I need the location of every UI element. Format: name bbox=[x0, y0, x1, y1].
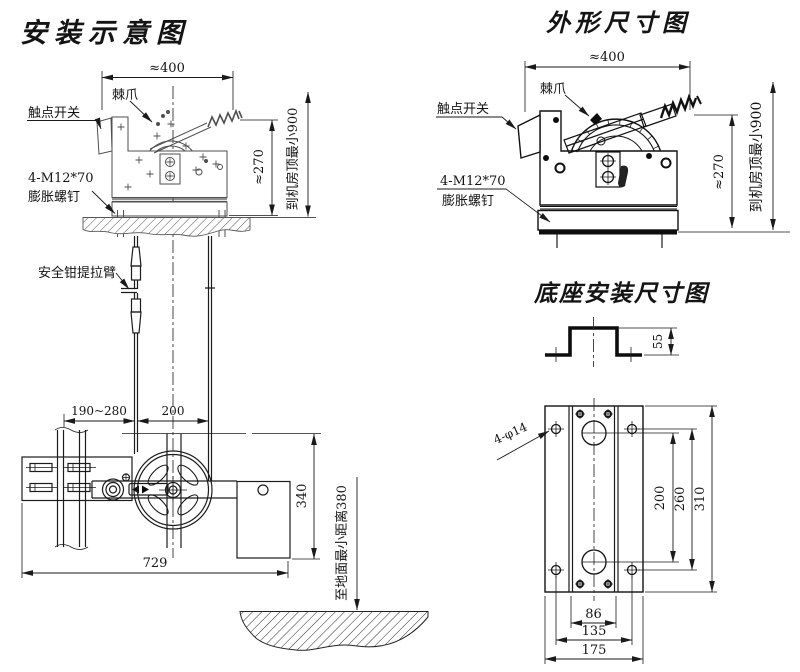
tension-assembly bbox=[22, 428, 321, 559]
svg-text:729: 729 bbox=[143, 556, 168, 571]
svg-text:86: 86 bbox=[585, 607, 602, 622]
bolt-name-label: 膨胀螺钉 bbox=[28, 190, 80, 205]
mounting-holes-label: 4-φ14 bbox=[491, 420, 529, 447]
svg-text:到机房顶最小900: 到机房顶最小900 bbox=[285, 108, 301, 211]
dim-overall-width: 729 bbox=[22, 503, 288, 578]
outline-diagram: 外形尺寸图 ≈400 bbox=[436, 8, 790, 248]
contact-switch-label: 触点开关 bbox=[28, 106, 80, 121]
svg-text:≈270: ≈270 bbox=[712, 154, 727, 190]
governor-rope bbox=[121, 236, 215, 482]
pawl-tip bbox=[590, 113, 602, 125]
installation-title: 安装示意图 bbox=[20, 18, 190, 49]
svg-text:190~280: 190~280 bbox=[71, 404, 127, 418]
base-plate-plan: 4-φ14 bbox=[491, 398, 643, 601]
contact-switch-bracket bbox=[518, 115, 540, 158]
base-title: 底座安装尺寸图 bbox=[533, 280, 711, 307]
dim-to-ceiling: 到机房顶最小900 bbox=[285, 92, 308, 217]
svg-text:135: 135 bbox=[582, 624, 607, 639]
dim-top-width: ≈400 bbox=[525, 50, 690, 112]
svg-text:260: 260 bbox=[673, 487, 688, 512]
base-plate bbox=[539, 230, 677, 235]
installation-diagram: 安装示意图 bbox=[20, 18, 428, 650]
svg-text:≈400: ≈400 bbox=[149, 61, 185, 76]
contact-switch-label: 触点开关 bbox=[437, 102, 489, 117]
dim-rail-to-rope: 190~280 bbox=[64, 404, 135, 427]
svg-text:200: 200 bbox=[162, 404, 185, 418]
counterweight-box bbox=[237, 482, 290, 559]
tension-spring bbox=[661, 97, 696, 118]
dim-to-ceiling: 到机房顶最小900 bbox=[749, 82, 773, 230]
svg-text:340: 340 bbox=[295, 484, 310, 509]
safety-gear-arm-label: 安全钳提拉臂 bbox=[38, 265, 116, 281]
dim-channel-height: 55 bbox=[619, 328, 679, 355]
dim-tension-height: 340 bbox=[292, 434, 320, 559]
svg-text:≈400: ≈400 bbox=[589, 50, 625, 65]
bolt-name-label: 膨胀螺钉 bbox=[442, 194, 494, 209]
pawl-label: 棘爪 bbox=[112, 88, 138, 103]
bolt-spec-label: 4-M12*70 bbox=[28, 171, 94, 186]
governor-installation-drawing: 安装示意图 bbox=[0, 0, 800, 672]
technical-drawing-page: 安装示意图 bbox=[0, 0, 800, 672]
dim-body-height: ≈270 bbox=[229, 120, 278, 216]
base-diagram: 底座安装尺寸图 55 4-φ14 bbox=[491, 280, 717, 664]
pit-floor bbox=[240, 612, 428, 651]
pawl-label: 棘爪 bbox=[540, 82, 566, 97]
safety-gear-arm-pin bbox=[121, 289, 137, 293]
outline-title: 外形尺寸图 bbox=[546, 8, 691, 37]
svg-text:至地面最小距离380: 至地面最小距离380 bbox=[334, 485, 350, 601]
svg-text:≈270: ≈270 bbox=[252, 149, 267, 185]
anchor-bolt-marks bbox=[557, 235, 662, 249]
svg-text:175: 175 bbox=[582, 643, 607, 658]
svg-text:200: 200 bbox=[653, 486, 668, 511]
installation-dimensions: ≈400 ≈270 到机房顶最小900 190~280 200 340 bbox=[22, 61, 357, 610]
svg-text:55: 55 bbox=[651, 334, 665, 349]
dim-min-to-floor: 至地面最小距离380 bbox=[334, 477, 357, 610]
svg-text:310: 310 bbox=[693, 487, 708, 512]
bolt-spec-label: 4-M12*70 bbox=[440, 174, 506, 189]
svg-text:到机房顶最小900: 到机房顶最小900 bbox=[749, 102, 765, 213]
guide-rail bbox=[58, 430, 86, 547]
channel-section: 55 bbox=[545, 317, 679, 367]
governor-device-outline bbox=[518, 96, 701, 248]
